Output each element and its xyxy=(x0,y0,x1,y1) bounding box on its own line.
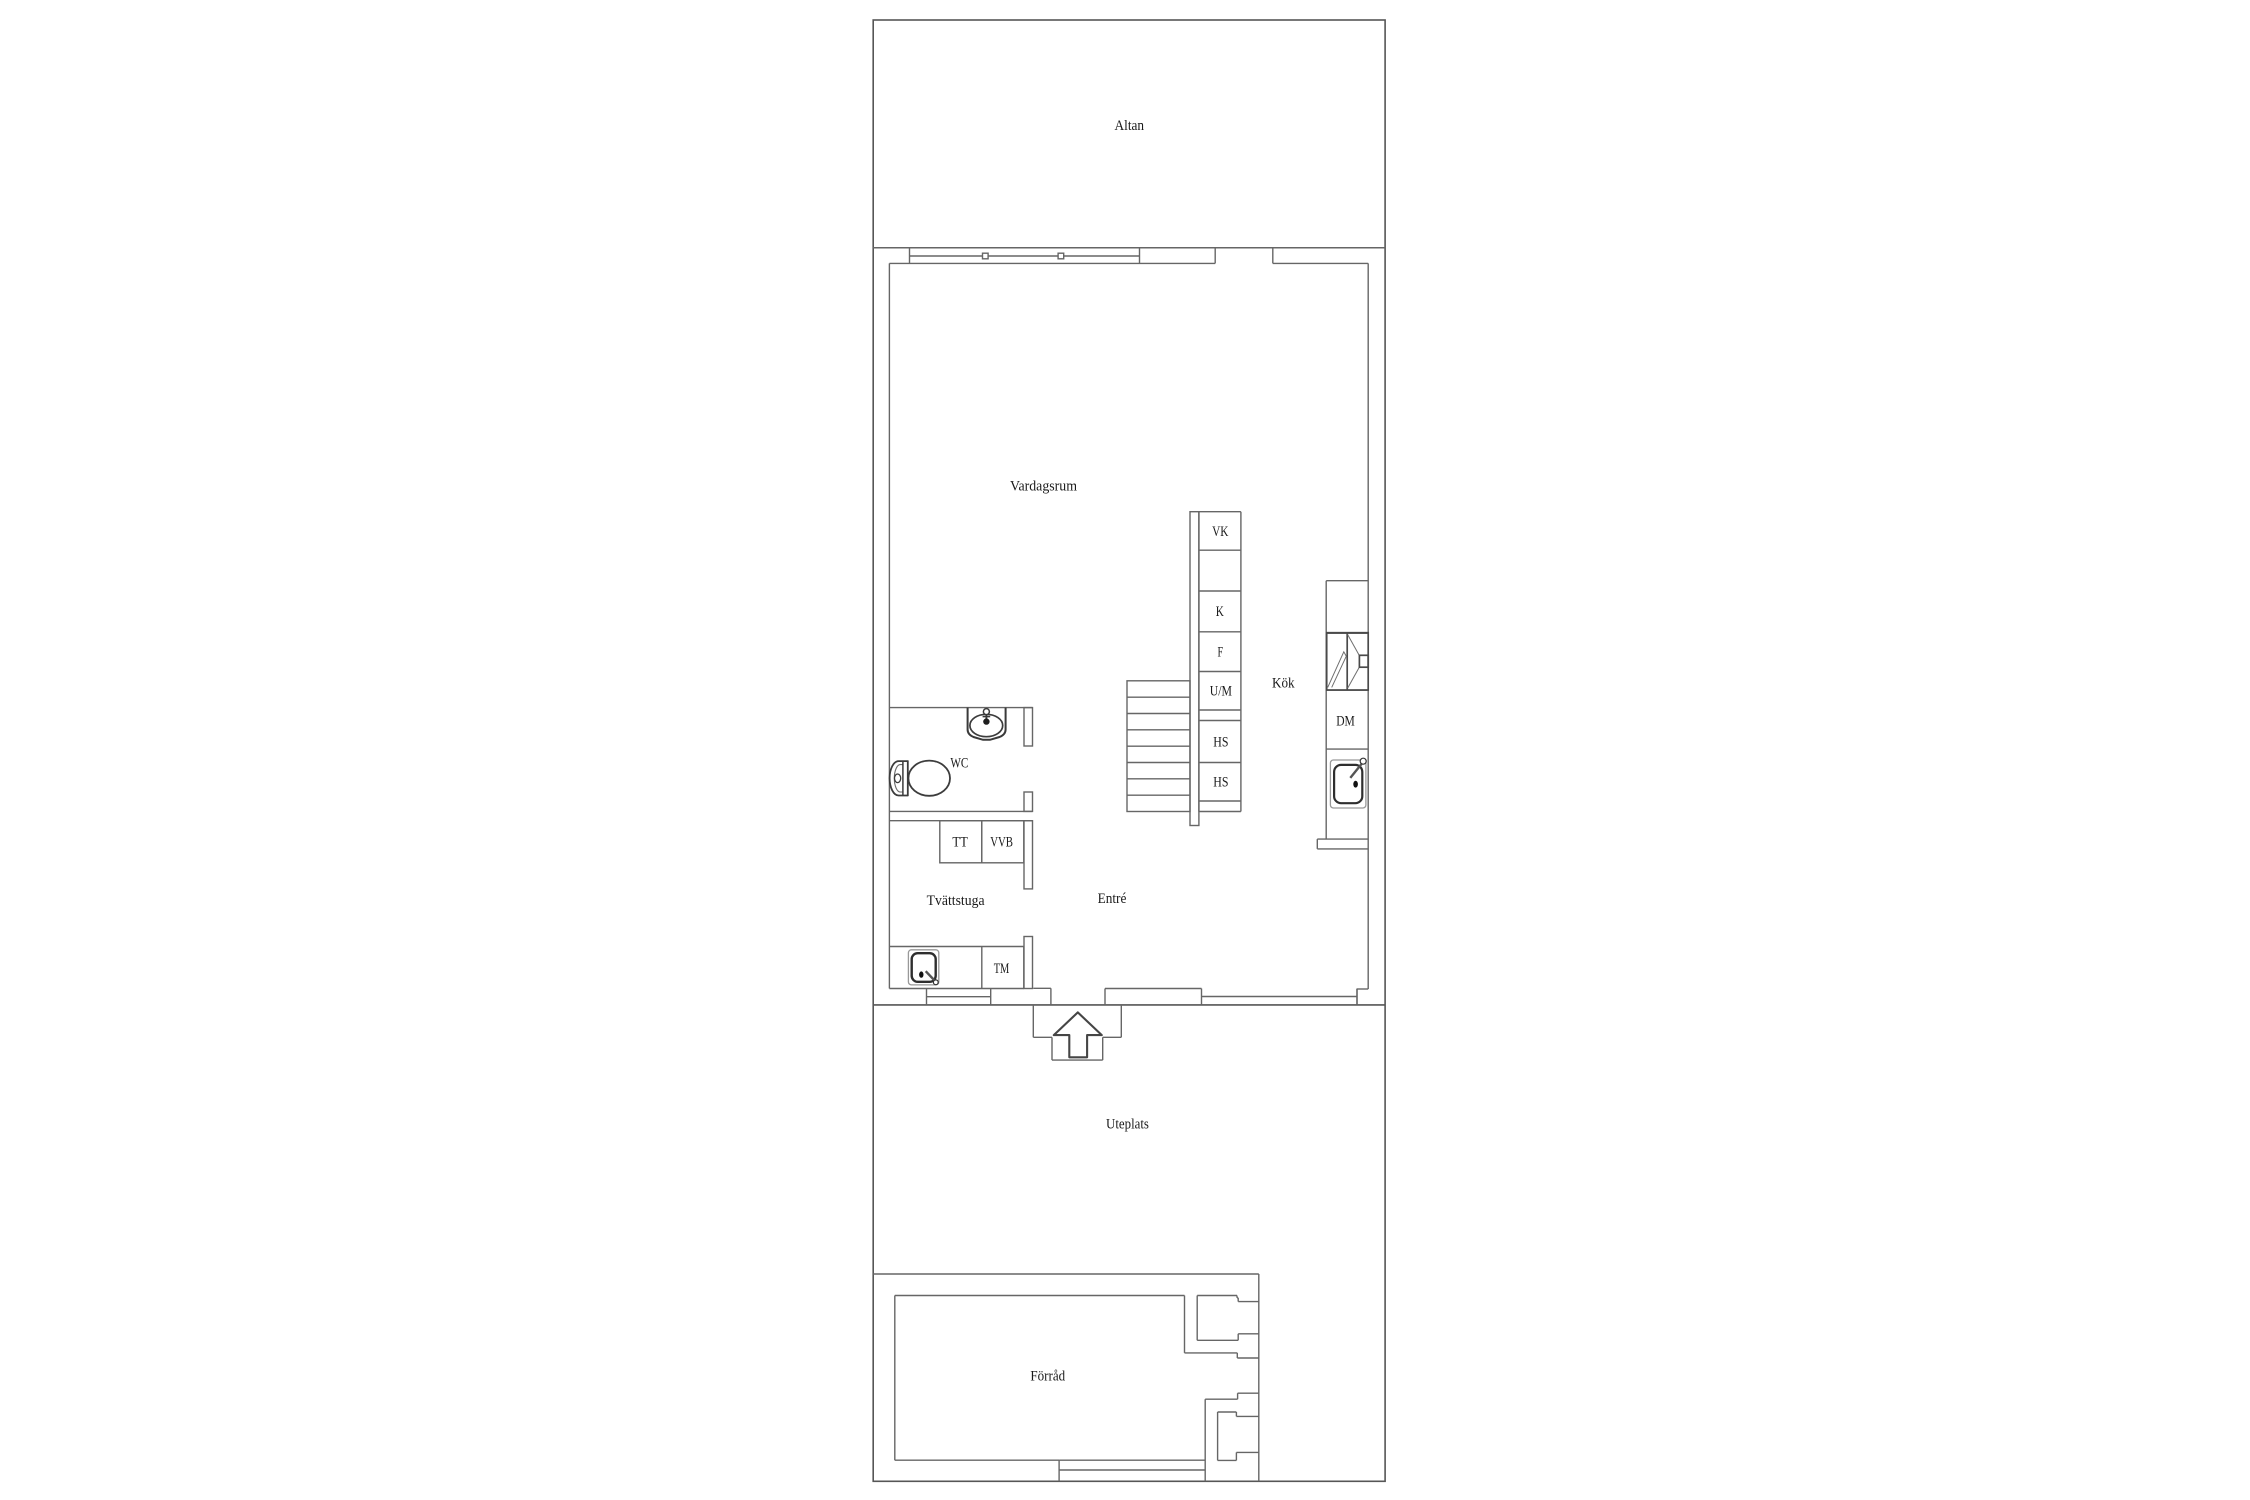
svg-text:F: F xyxy=(1218,645,1224,661)
svg-text:K: K xyxy=(1216,604,1224,620)
svg-text:Kök: Kök xyxy=(1272,675,1295,691)
svg-text:Entré: Entré xyxy=(1098,891,1127,907)
svg-text:Tvättstuga: Tvättstuga xyxy=(927,893,985,909)
svg-text:Uteplats: Uteplats xyxy=(1106,1117,1149,1133)
svg-text:HS: HS xyxy=(1213,775,1228,791)
svg-text:TM: TM xyxy=(994,961,1010,977)
svg-text:DM: DM xyxy=(1336,713,1355,729)
svg-text:U/M: U/M xyxy=(1210,684,1232,700)
svg-text:Vardagsrum: Vardagsrum xyxy=(1010,479,1077,495)
svg-text:HS: HS xyxy=(1213,735,1228,751)
svg-text:Förråd: Förråd xyxy=(1030,1368,1065,1384)
svg-text:VVB: VVB xyxy=(990,835,1013,851)
svg-text:WC: WC xyxy=(950,756,968,772)
svg-text:TT: TT xyxy=(952,835,967,851)
svg-text:Altan: Altan xyxy=(1115,118,1145,134)
svg-text:VK: VK xyxy=(1212,524,1228,540)
